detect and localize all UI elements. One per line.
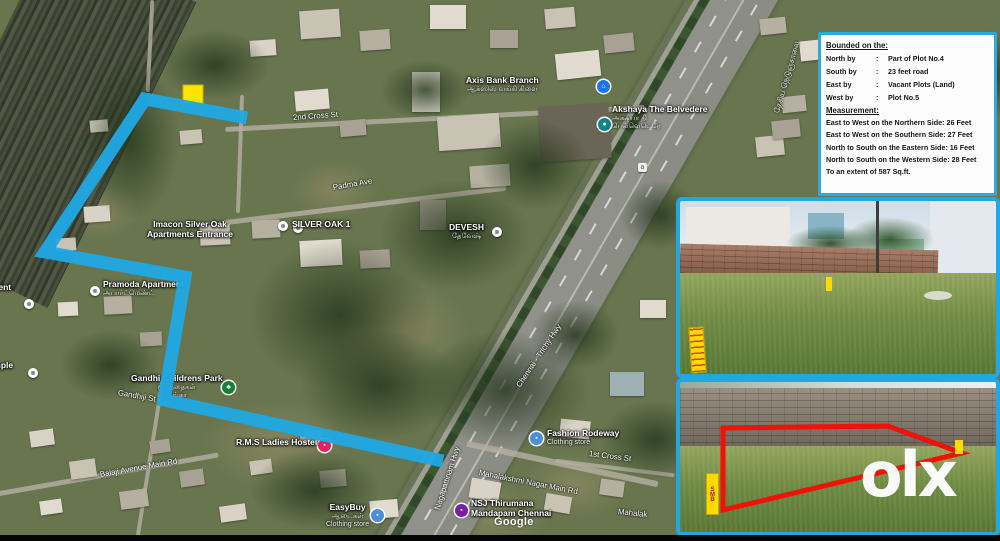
measurement-line: East to West on the Southern Side: 27 Fe… [826, 129, 989, 141]
boundary-label: West by [826, 91, 876, 104]
boundary-row: West by : Plot No.5 [826, 91, 989, 104]
poi-temple: Temple [0, 361, 13, 371]
building [555, 50, 601, 80]
boundary-row: South by : 23 feet road [826, 65, 989, 78]
photo-utility-pole [876, 201, 879, 279]
plot-photo-top [676, 197, 1000, 378]
colon: : [876, 52, 888, 65]
colon: : [876, 78, 888, 91]
boundary-label: South by [826, 65, 876, 78]
boundary-row: East by : Vacant Plots (Land) [826, 78, 989, 91]
building [199, 224, 230, 246]
boundaries-title: Bounded on the: [826, 39, 989, 52]
bottom-black-bar [0, 535, 1000, 541]
building [119, 488, 149, 510]
boundary-value: Vacant Plots (Land) [888, 78, 989, 91]
building [58, 301, 79, 316]
photo-debris [924, 291, 952, 300]
devesh-pin-icon [492, 227, 502, 237]
measurement-line: East to West on the Northern Side: 26 Fe… [826, 117, 989, 129]
building [544, 7, 576, 30]
terrain-patch [80, 60, 180, 220]
building [104, 295, 133, 314]
road-label-2nd-cross-st: 2nd Cross St [293, 110, 339, 122]
poi-pramoda-apartment: Pramoda Apartment அபார்ட்மெண்ட் [103, 280, 184, 298]
building [179, 468, 205, 487]
photo-boundary-stone-small [826, 277, 832, 291]
silver-oak-entrance-pin-icon [293, 223, 303, 233]
boundary-row: North by : Part of Plot No.4 [826, 52, 989, 65]
building [299, 9, 341, 40]
google-watermark: Google [494, 516, 534, 528]
pramoda-pin-icon [90, 286, 100, 296]
boundary-label: East by [826, 78, 876, 91]
road-label-mahalak-partial: Mahalak [618, 507, 648, 519]
measurement-title: Measurement: [826, 104, 989, 117]
transit-stop-icon: a [638, 163, 647, 172]
photo-grass-field [680, 273, 996, 374]
building [599, 478, 625, 497]
building [252, 219, 281, 238]
plot-details-box: Bounded on the: North by : Part of Plot … [818, 32, 997, 196]
building [359, 29, 390, 51]
building [179, 129, 202, 145]
stone-marker-text: SMB [710, 487, 716, 502]
boundary-label: North by [826, 52, 876, 65]
building [490, 30, 518, 48]
photo-boundary-stone [688, 327, 706, 374]
building [69, 458, 97, 479]
park-tree-icon: ♣ [222, 381, 235, 394]
building [29, 428, 55, 447]
terrain-patch [530, 300, 620, 370]
poi-subtitle: Clothing store [547, 439, 590, 447]
measurement-line: North to South on the Eastern Side: 16 F… [826, 142, 989, 154]
terrain-patch [380, 60, 470, 120]
temple-pin-icon [28, 368, 38, 378]
measurement-line: North to South on the Western Side: 28 F… [826, 154, 989, 166]
silver-oak-1-pin-icon [278, 221, 288, 231]
building [339, 119, 366, 137]
bank-icon: ⌂ [597, 80, 610, 93]
poi-axis-bank: Axis Bank Branch ஆக்ஸிஸ் வங்கி கிளை [466, 76, 539, 94]
building [219, 503, 247, 522]
clothing-store-icon: ▪ [530, 432, 543, 445]
poi-name: Temple [0, 361, 13, 371]
clothing-store-icon: ▪ [371, 509, 384, 522]
colon: : [876, 91, 888, 104]
building [39, 499, 63, 516]
measurement-line: To an extent of 587 Sq.ft. [826, 166, 989, 178]
road-label-balaji-avenue-main-rd: Balaji Avenue Main Rd [99, 456, 178, 478]
listing-image: ⌂ ● ♣ ▪ ▪ ▪ ▪ a Axis Bank Branch ஆக்ஸிஸ்… [0, 0, 1000, 541]
building [771, 119, 801, 140]
terrain-patch [250, 450, 380, 530]
boundary-value: Plot No.5 [888, 91, 989, 104]
boundary-value: 23 feet road [888, 65, 989, 78]
building [149, 439, 171, 455]
photo-boundary-stone: SMB [706, 473, 719, 515]
building [640, 300, 666, 318]
hostel-bed-icon: ▪ [318, 439, 331, 452]
plot-photo-bottom: SMB olx [676, 378, 1000, 536]
poi-name: Pramoda Apartment [103, 280, 184, 290]
colon: : [876, 65, 888, 78]
building [759, 17, 787, 36]
road-label-gandhiji-st: Gandhiji St [117, 388, 156, 403]
building [610, 372, 644, 396]
wedding-hall-icon: ▪ [455, 504, 468, 517]
akshaya-pin-icon: ● [598, 118, 611, 131]
poi-subtitle: பூங்கா [167, 392, 187, 400]
poi-subtitle: ஆக்ஸிஸ் வங்கி கிளை [467, 86, 538, 94]
street [236, 95, 244, 213]
poi-pin-icon [24, 299, 34, 309]
building [294, 89, 330, 112]
building [603, 32, 635, 53]
building [430, 5, 466, 29]
terrain-patch [160, 30, 270, 100]
photo-boundary-stone-small [955, 440, 963, 454]
olx-logo: olx [860, 444, 955, 506]
terrain-patch [480, 120, 590, 210]
terrain-patch [60, 330, 160, 400]
poi-name: Axis Bank Branch [466, 76, 539, 86]
building [56, 237, 77, 251]
boundary-value: Part of Plot No.4 [888, 52, 989, 65]
